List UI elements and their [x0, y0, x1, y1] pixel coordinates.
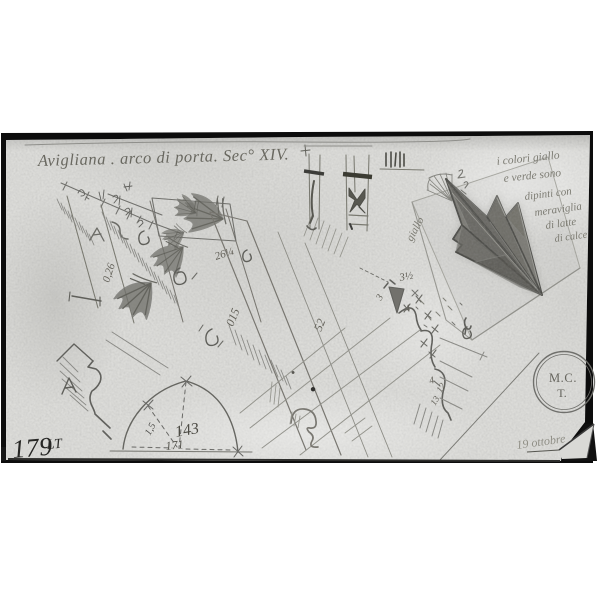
svg-text:M.C.: M.C.	[549, 371, 577, 385]
svg-text:3½: 3½	[397, 270, 414, 284]
svg-text:171: 171	[165, 437, 184, 453]
svg-text:T.: T.	[557, 386, 566, 400]
svg-text:LT: LT	[45, 437, 64, 453]
